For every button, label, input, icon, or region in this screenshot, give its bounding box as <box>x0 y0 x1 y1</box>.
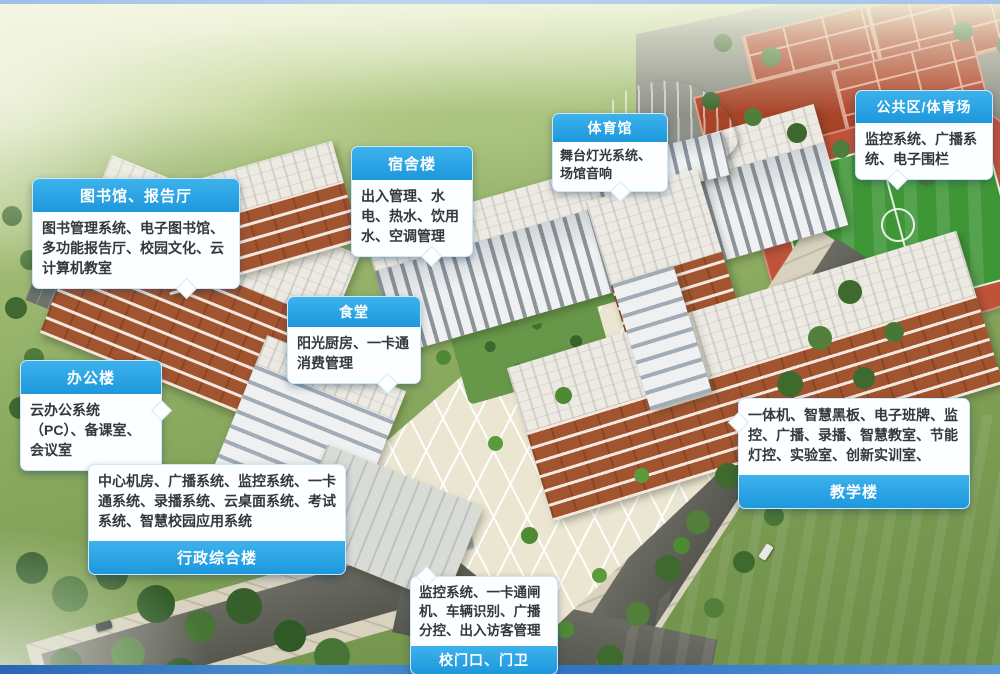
callout-admin: 中心机房、广播系统、监控系统、一卡通系统、录播系统、云桌面系统、考试系统、智慧校… <box>88 464 346 575</box>
callout-teaching-title: 教学楼 <box>739 475 969 508</box>
callout-dormitory-body: 出入管理、水电、热水、饮用水、空调管理 <box>352 180 472 256</box>
callout-admin-body: 中心机房、广播系统、监控系统、一卡通系统、录播系统、云桌面系统、考试系统、智慧校… <box>89 465 345 541</box>
callout-office-title: 办公楼 <box>21 361 161 394</box>
callout-office-body: 云办公系统（PC）、备课室、会议室 <box>21 394 161 470</box>
campus-aerial-diagram: 图书馆、报告厅 图书管理系统、电子图书馆、多功能报告厅、校园文化、云计算机教室 … <box>0 0 1000 674</box>
palm-trees-plaza <box>436 350 451 365</box>
callout-teaching-body: 一体机、智慧黑板、电子班牌、监控、广播、录播、智慧教室、节能灯控、实验室、创新实… <box>739 399 969 475</box>
callout-dormitory: 宿舍楼 出入管理、水电、热水、饮用水、空调管理 <box>351 146 473 257</box>
callout-gate-body: 监控系统、一卡通闸机、车辆识别、广播分控、出入访客管理 <box>411 577 557 646</box>
tree-row-east-road <box>838 280 862 304</box>
tree-row-west <box>2 206 22 226</box>
callout-teaching: 一体机、智慧黑板、电子班牌、监控、广播、录播、智慧教室、节能灯控、实验室、创新实… <box>738 398 970 509</box>
tree-cluster-southwest <box>16 552 48 584</box>
callout-library: 图书馆、报告厅 图书管理系统、电子图书馆、多功能报告厅、校园文化、云计算机教室 <box>32 178 240 289</box>
callout-library-body: 图书管理系统、电子图书馆、多功能报告厅、校园文化、云计算机教室 <box>33 212 239 288</box>
callout-public-area-body: 监控系统、广播系统、电子围栏 <box>856 123 992 179</box>
callout-canteen-title: 食堂 <box>288 297 420 327</box>
callout-gate: 监控系统、一卡通闸机、车辆识别、广播分控、出入访客管理 校门口、门卫 <box>410 576 558 674</box>
field-center-circle <box>877 204 919 246</box>
callout-admin-title: 行政综合楼 <box>89 541 345 574</box>
callout-canteen-body: 阳光厨房、一卡通消费管理 <box>288 327 420 383</box>
callout-office: 办公楼 云办公系统（PC）、备课室、会议室 <box>20 360 162 471</box>
callout-gymnasium: 体育馆 舞台灯光系统、场馆音响 <box>552 113 668 192</box>
callout-gate-title: 校门口、门卫 <box>411 646 557 674</box>
top-border-bar <box>0 0 1000 4</box>
callout-library-title: 图书馆、报告厅 <box>33 179 239 212</box>
callout-dormitory-title: 宿舍楼 <box>352 147 472 180</box>
tree-row-courts <box>702 92 720 110</box>
callout-gymnasium-body: 舞台灯光系统、场馆音响 <box>553 142 667 191</box>
callout-canteen: 食堂 阳光厨房、一卡通消费管理 <box>287 296 421 384</box>
callout-gymnasium-title: 体育馆 <box>553 114 667 142</box>
callout-public-area-title: 公共区/体育场 <box>856 91 992 123</box>
callout-public-area: 公共区/体育场 监控系统、广播系统、电子围栏 <box>855 90 993 180</box>
